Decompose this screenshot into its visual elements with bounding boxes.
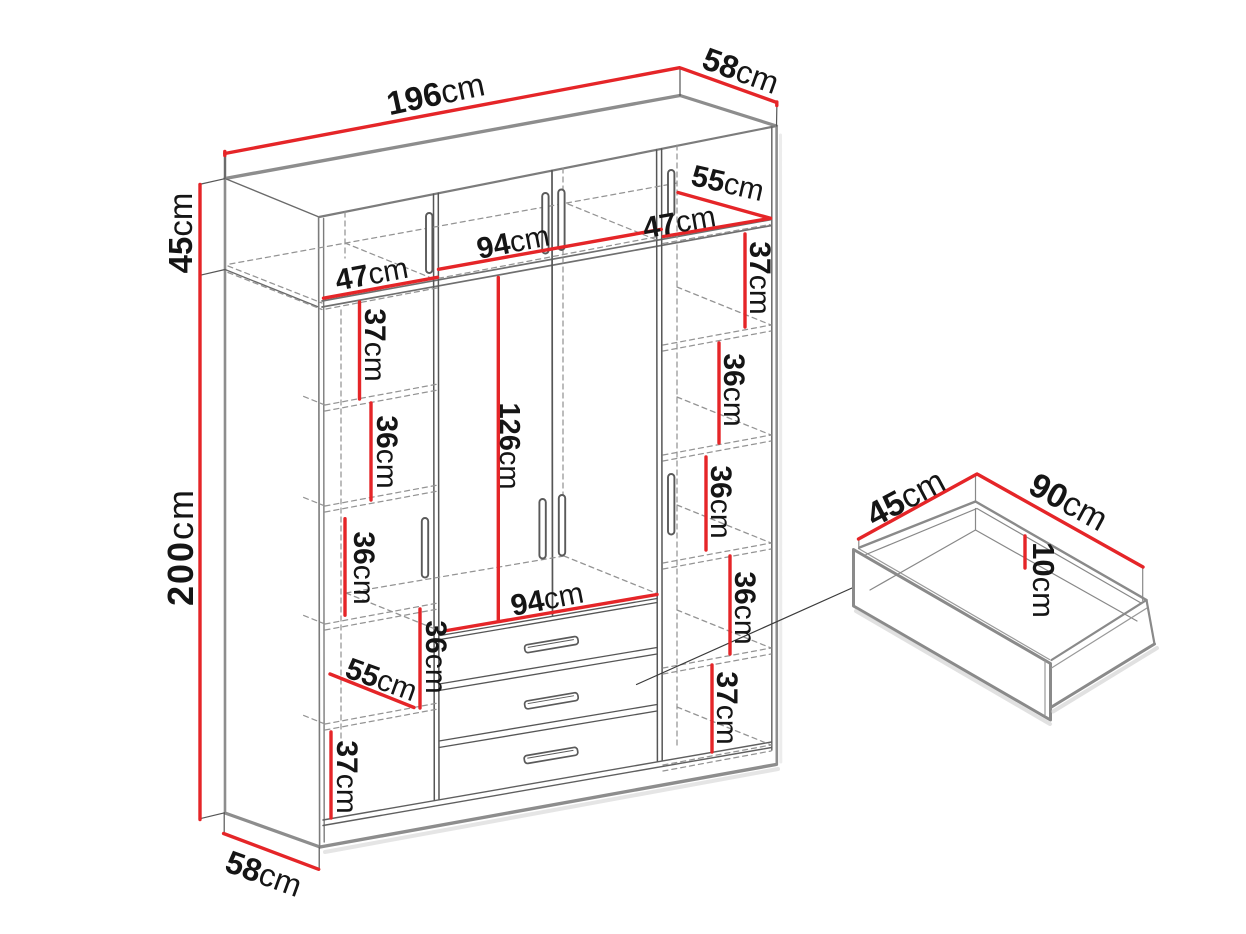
svg-text:36cm: 36cm	[728, 571, 761, 644]
svg-text:36cm: 36cm	[370, 415, 403, 488]
svg-text:45cm: 45cm	[162, 193, 199, 274]
svg-text:36cm: 36cm	[717, 353, 750, 426]
svg-text:37cm: 37cm	[743, 241, 776, 314]
svg-text:10cm: 10cm	[1026, 542, 1061, 618]
svg-text:126cm: 126cm	[493, 402, 525, 489]
svg-text:37cm: 37cm	[330, 740, 363, 813]
svg-text:36cm: 36cm	[704, 465, 737, 538]
svg-text:37cm: 37cm	[710, 671, 743, 744]
svg-text:36cm: 36cm	[419, 620, 452, 693]
svg-text:37cm: 37cm	[358, 308, 391, 381]
svg-text:36cm: 36cm	[347, 531, 380, 604]
svg-text:200cm: 200cm	[160, 488, 201, 606]
